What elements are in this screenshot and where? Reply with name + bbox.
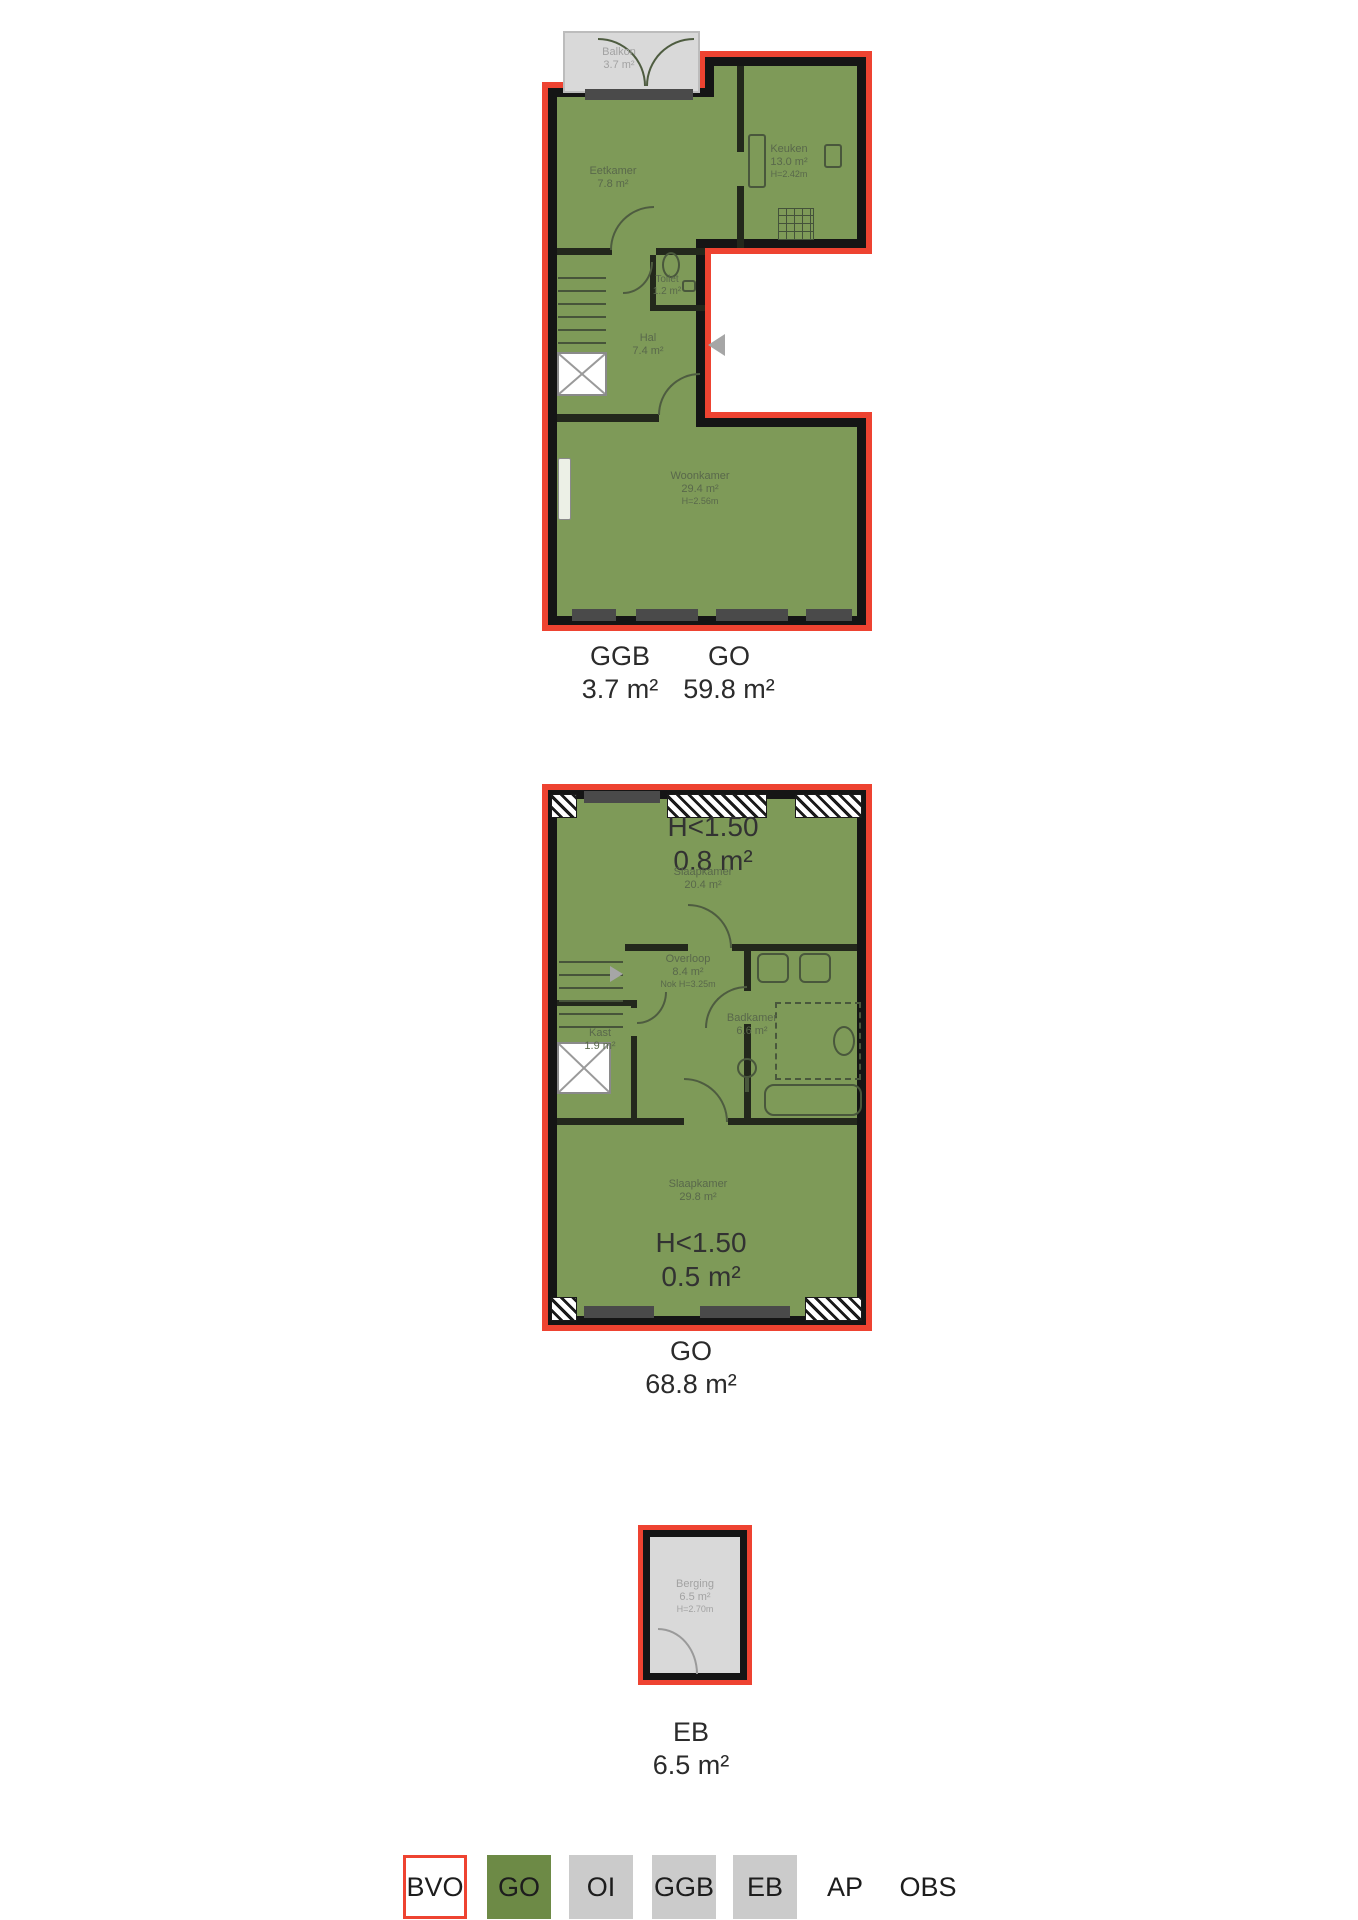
stairs-icon xyxy=(558,266,606,350)
room-label-slaapkamer2: Slaapkamer 29.8 m² xyxy=(669,1178,728,1204)
window-segment xyxy=(806,609,852,621)
legend-item-obs: OBS xyxy=(896,1855,960,1919)
room-area: 29.4 m² xyxy=(670,483,729,496)
room-name: Kast xyxy=(584,1027,615,1040)
wall-segment xyxy=(737,66,744,152)
room-area: 6.6 m² xyxy=(727,1025,777,1038)
floorplan-sheet: Balkon 3.7 m² Eetkamer 7.8 m² Keuken 13.… xyxy=(0,0,1358,1920)
legend-label: BVO xyxy=(406,1872,463,1903)
wall-segment xyxy=(631,1036,637,1120)
legend-label: EB xyxy=(747,1872,783,1903)
room-label-eetkamer: Eetkamer 7.8 m² xyxy=(589,165,636,191)
room-area: 8.4 m² xyxy=(660,966,715,979)
legend-item-go: GO xyxy=(487,1855,551,1919)
total-ggb-floor1: GGB 3.7 m² xyxy=(582,640,659,706)
entrance-arrow-icon xyxy=(708,334,725,356)
low-height-annotation-bottom: H<1.50 0.5 m² xyxy=(655,1226,746,1294)
pedestal-stem xyxy=(745,1078,749,1092)
legend-label: AP xyxy=(827,1872,863,1903)
window-segment xyxy=(636,609,698,621)
room-name: Badkamer xyxy=(727,1012,777,1025)
room-name: Eetkamer xyxy=(589,165,636,178)
stair-arrow-icon xyxy=(610,966,623,982)
room-name: Overloop xyxy=(660,953,715,966)
radiator xyxy=(558,458,571,520)
room-area: 29.8 m² xyxy=(669,1191,728,1204)
room-area: 7.8 m² xyxy=(589,178,636,191)
wall-segment xyxy=(650,305,705,311)
room-height: H=2.70m xyxy=(676,1604,714,1615)
legend-item-eb: EB xyxy=(733,1855,797,1919)
room-height: H=2.56m xyxy=(670,496,729,507)
room-name: Balkon xyxy=(602,46,636,59)
room-name: Berging xyxy=(676,1578,714,1591)
wall-segment xyxy=(656,248,705,255)
total-code: EB xyxy=(653,1716,730,1749)
room-name: Slaapkamer xyxy=(669,1178,728,1191)
legend-item-ap: AP xyxy=(813,1855,877,1919)
room-name: Hal xyxy=(632,332,663,345)
total-go-floor1: GO 59.8 m² xyxy=(683,640,775,706)
legend-item-ggb: GGB xyxy=(652,1855,716,1919)
bathtub xyxy=(764,1084,862,1116)
room-height: Nok H=3.25m xyxy=(660,979,715,990)
room-area: 6.5 m² xyxy=(676,1591,714,1604)
total-code: GO xyxy=(683,640,775,673)
total-go-floor2: GO 68.8 m² xyxy=(645,1335,737,1401)
legend-label: GO xyxy=(498,1872,540,1903)
total-value: 59.8 m² xyxy=(683,673,775,706)
bathroom-sink xyxy=(799,953,831,983)
annotation-label: H<1.50 xyxy=(655,1226,746,1260)
wall-segment xyxy=(557,1118,684,1125)
total-value: 3.7 m² xyxy=(582,673,659,706)
room-name: Slaapkamer xyxy=(674,866,733,879)
window-segment xyxy=(716,609,788,621)
room-area: 3.7 m² xyxy=(602,59,636,72)
total-value: 68.8 m² xyxy=(645,1368,737,1401)
legend-item-oi: OI xyxy=(569,1855,633,1919)
annotation-value: 0.5 m² xyxy=(655,1260,746,1294)
total-code: GGB xyxy=(582,640,659,673)
shaft-cross xyxy=(559,354,605,394)
room-label-slaapkamer1: Slaapkamer 20.4 m² xyxy=(674,866,733,892)
wall-segment xyxy=(737,186,744,248)
wall-segment xyxy=(728,1118,857,1125)
roof-hatch-marker xyxy=(795,794,862,818)
legend-label: GGB xyxy=(654,1872,714,1903)
window-segment xyxy=(584,1306,654,1318)
toilet-sink xyxy=(682,280,696,292)
kitchen-counter xyxy=(748,134,766,188)
roof-hatch-marker xyxy=(551,794,577,818)
room-area: 1.2 m² xyxy=(653,286,681,298)
room-area: 13.0 m² xyxy=(770,156,807,169)
window-segment xyxy=(584,791,660,803)
kitchen-stove xyxy=(778,208,814,240)
room-label-berging: Berging 6.5 m² H=2.70m xyxy=(676,1578,714,1615)
room-name: Toilet xyxy=(653,274,681,286)
kitchen-sink xyxy=(824,144,842,168)
room-name: Keuken xyxy=(770,143,807,156)
wall-segment xyxy=(744,951,751,991)
legend-item-bvo: BVO xyxy=(403,1855,467,1919)
total-value: 6.5 m² xyxy=(653,1749,730,1782)
window-segment xyxy=(585,89,693,100)
room-label-overloop: Overloop 8.4 m² Nok H=3.25m xyxy=(660,953,715,990)
window-segment xyxy=(700,1306,790,1318)
shaft-icon xyxy=(557,352,607,396)
legend-label: OBS xyxy=(899,1872,956,1903)
room-label-hal: Hal 7.4 m² xyxy=(632,332,663,358)
pedestal-sink xyxy=(737,1058,757,1078)
wall-segment xyxy=(732,944,857,951)
total-eb-storage: EB 6.5 m² xyxy=(653,1716,730,1782)
room-label-balkon: Balkon 3.7 m² xyxy=(602,46,636,72)
stairs-icon xyxy=(559,950,623,1036)
legend-label: OI xyxy=(587,1872,616,1903)
room-label-woonkamer: Woonkamer 29.4 m² H=2.56m xyxy=(670,470,729,507)
wall-segment xyxy=(557,414,659,422)
room-name: Woonkamer xyxy=(670,470,729,483)
annotation-label: H<1.50 xyxy=(667,810,758,844)
window-segment xyxy=(572,609,616,621)
roof-hatch-marker xyxy=(805,1297,862,1321)
roof-hatch-marker xyxy=(551,1297,577,1321)
total-code: GO xyxy=(645,1335,737,1368)
room-area: 7.4 m² xyxy=(632,345,663,358)
room-area: 20.4 m² xyxy=(674,879,733,892)
room-label-keuken: Keuken 13.0 m² H=2.42m xyxy=(770,143,807,180)
room-label-badkamer: Badkamer 6.6 m² xyxy=(727,1012,777,1038)
wall-segment xyxy=(557,248,612,255)
room-height: H=2.42m xyxy=(770,169,807,180)
room-label-toilet: Toilet 1.2 m² xyxy=(653,274,681,298)
wall-segment xyxy=(625,944,688,951)
room-area: 1.9 m² xyxy=(584,1040,615,1053)
room-label-kast: Kast 1.9 m² xyxy=(584,1027,615,1053)
toilet-bowl xyxy=(833,1026,855,1056)
bathroom-sink xyxy=(757,953,789,983)
